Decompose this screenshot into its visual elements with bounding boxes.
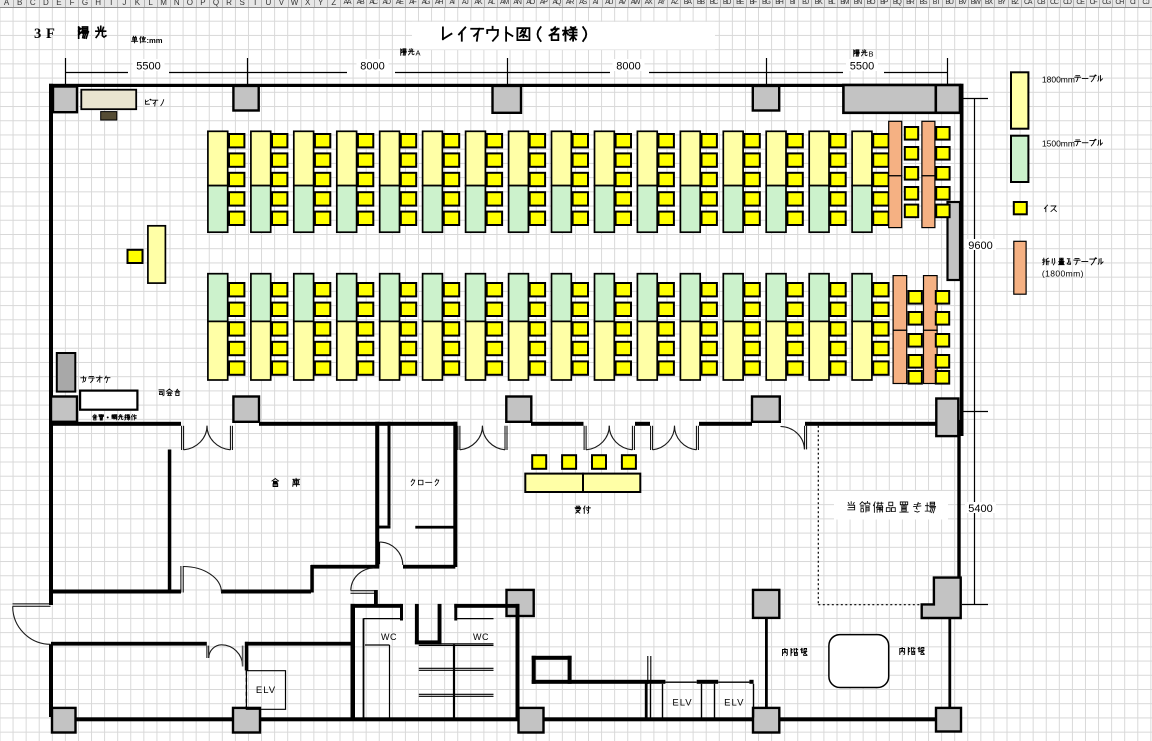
svg-text::mm: :mm — [147, 36, 163, 45]
svg-text:WC: WC — [473, 632, 489, 642]
svg-text:F: F — [46, 26, 55, 42]
svg-text:B: B — [869, 50, 874, 59]
svg-text:ELV: ELV — [256, 685, 276, 696]
svg-text:5500: 5500 — [136, 60, 160, 72]
svg-text:5500: 5500 — [850, 60, 874, 72]
svg-text:ELV: ELV — [672, 697, 692, 708]
svg-text:9600: 9600 — [968, 240, 992, 252]
svg-text:8000: 8000 — [616, 60, 640, 72]
svg-text:(1800mm): (1800mm) — [1042, 269, 1084, 279]
svg-text:8000: 8000 — [360, 60, 384, 72]
svg-text:ELV: ELV — [724, 697, 744, 708]
svg-text:1800mm: 1800mm — [1042, 74, 1075, 84]
svg-text:1500mm: 1500mm — [1042, 139, 1075, 149]
svg-text:5400: 5400 — [968, 503, 992, 515]
svg-text:A: A — [416, 49, 421, 58]
svg-text:3: 3 — [34, 26, 41, 42]
svg-text:WC: WC — [381, 632, 397, 642]
